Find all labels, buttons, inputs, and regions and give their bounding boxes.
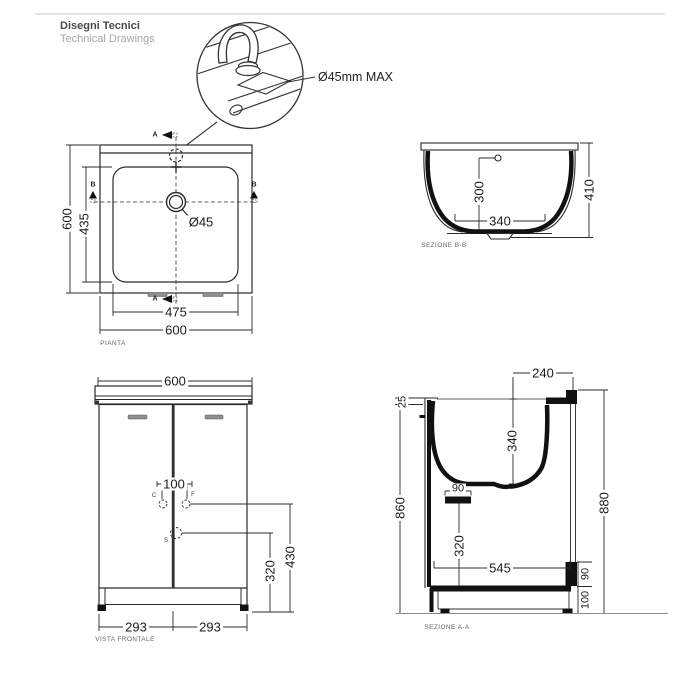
marker-c-circle: [159, 500, 167, 508]
front-handle-right: [205, 415, 223, 419]
front-plinth-recess: [105, 588, 241, 605]
aa-fixing-tab: [420, 415, 426, 418]
front-dimensions: [98, 377, 294, 631]
front-foot-right: [240, 605, 249, 612]
aa-plinth-recess: [438, 592, 569, 610]
technical-drawing-sheet: Disegni Tecnici Technical Drawings Ø45mm…: [0, 0, 700, 700]
plan-foot-left: [148, 293, 167, 297]
front-countertop: [95, 386, 252, 404]
plan-foot-right: [203, 293, 223, 297]
faucet-detail-view: [180, 16, 315, 150]
aa-back-rim-step: [546, 390, 577, 404]
bb-basin-profile: [428, 151, 572, 232]
bb-drain: [487, 234, 513, 240]
front-view: [95, 377, 294, 631]
faucet-spout-icon: [218, 25, 258, 63]
aa-back-panel: [571, 404, 576, 562]
overflow-hole-icon: [228, 103, 244, 117]
faucet-base-bottom: [236, 66, 260, 76]
plan-view: [66, 131, 258, 334]
section-aa-view: [395, 373, 668, 614]
aa-basin-profile: [432, 401, 547, 487]
aa-back-step-column: [566, 562, 578, 586]
bb-tap-hole: [495, 155, 501, 161]
front-door-gap: [172, 405, 175, 589]
marker-f-circle: [182, 500, 190, 508]
section-bb-view: [421, 143, 593, 239]
aa-bottom-shelf: [430, 586, 571, 592]
aa-support-rail: [445, 497, 471, 504]
bb-rim: [421, 143, 578, 150]
front-handle-left: [128, 415, 147, 419]
front-foot-left: [98, 605, 107, 612]
drawing-canvas: [0, 0, 700, 700]
